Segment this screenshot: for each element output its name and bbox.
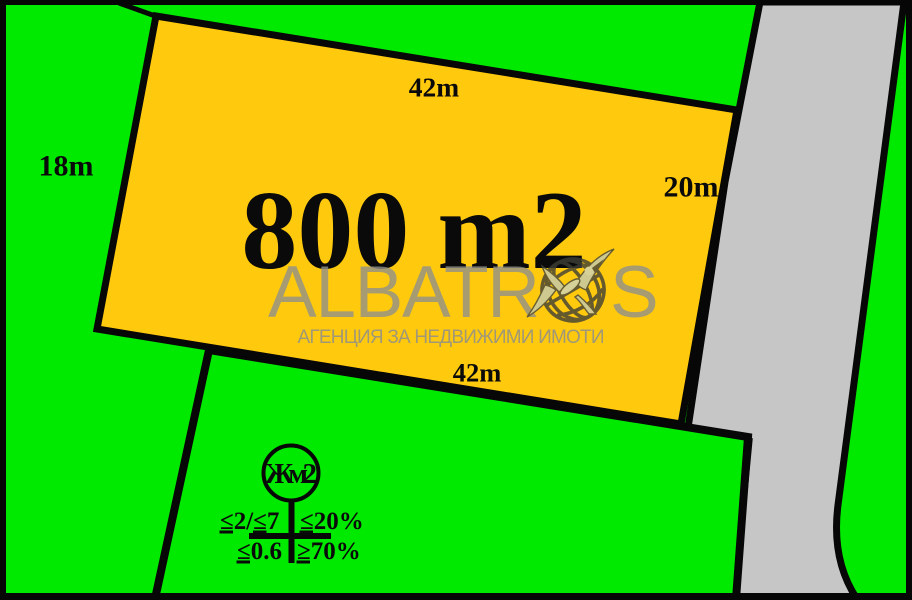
- svg-text:18m: 18m: [39, 149, 94, 182]
- svg-text:S: S: [610, 252, 659, 333]
- svg-text:42m: 42m: [453, 358, 502, 388]
- svg-text:АГЕНЦИЯ ЗА НЕДВИЖИМИ ИМОТИ: АГЕНЦИЯ ЗА НЕДВИЖИМИ ИМОТИ: [298, 327, 605, 348]
- svg-text:Жм2: Жм2: [265, 458, 317, 490]
- svg-text:42m: 42m: [409, 72, 460, 103]
- svg-text:ALBATR: ALBATR: [268, 252, 540, 333]
- svg-text:20m: 20m: [664, 171, 719, 204]
